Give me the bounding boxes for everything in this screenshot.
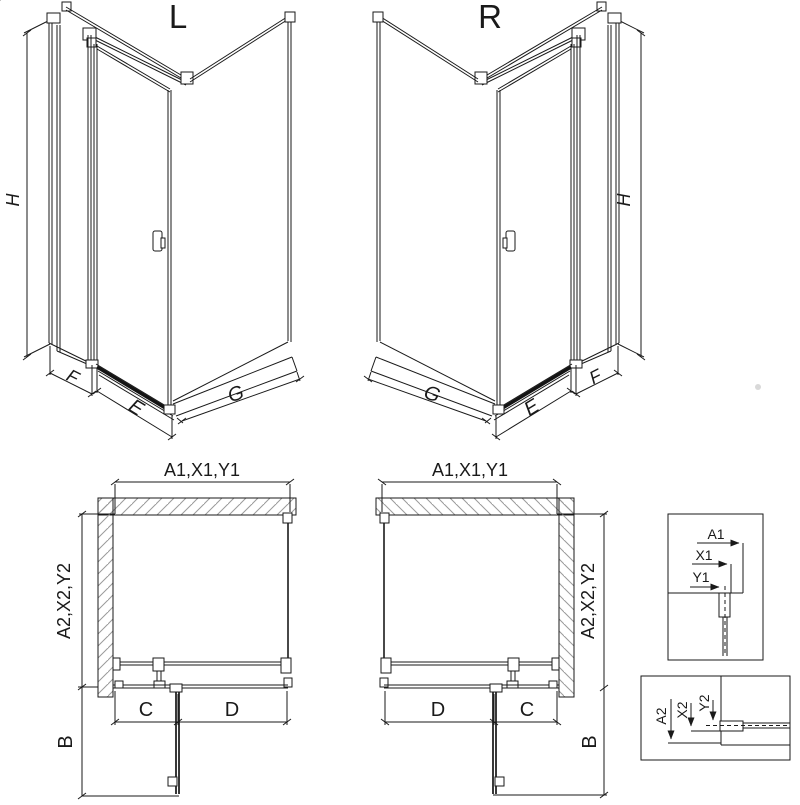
door-handle-plan bbox=[168, 777, 177, 786]
plan-left-depth-label: A2,X2,Y2 bbox=[54, 563, 74, 639]
variant-label-right: R bbox=[478, 0, 502, 35]
plan-left-c-label: C bbox=[139, 699, 153, 721]
watermark-dot bbox=[755, 384, 761, 390]
plan-left-view bbox=[98, 479, 296, 794]
detail-y2-label: Y2 bbox=[696, 694, 712, 711]
plan-left-d-label: D bbox=[225, 699, 239, 721]
sill-wall-profile bbox=[115, 681, 123, 688]
dim-label-f-left: F bbox=[63, 365, 83, 388]
wall-side bbox=[98, 498, 113, 697]
detail-a1-label: A1 bbox=[707, 526, 724, 542]
variant-label-left: L bbox=[169, 0, 187, 35]
door-handle-nub bbox=[161, 238, 165, 248]
plan-left-b-label: B bbox=[55, 735, 77, 748]
glass-foot bbox=[284, 678, 292, 687]
plan-left-dim-strip bbox=[78, 511, 179, 799]
door-pivot bbox=[170, 684, 182, 692]
bar-wall-mount bbox=[113, 658, 120, 670]
bar-connector bbox=[281, 658, 291, 673]
plan-right-d-label: D bbox=[431, 699, 445, 721]
dim-label-h-right: H bbox=[614, 193, 634, 207]
drawing-sheet: L R H F E G H F E G A1,X1,Y1 A2,X2,Y2 C … bbox=[0, 0, 800, 800]
plan-right-dim-strip bbox=[493, 511, 608, 798]
wall-top bbox=[98, 498, 296, 515]
dim-label-f-right: F bbox=[586, 365, 606, 388]
corner-foot-cap bbox=[164, 405, 175, 414]
detail-x1-label: X1 bbox=[695, 547, 712, 563]
plan-right-depth-label: A2,X2,Y2 bbox=[578, 563, 598, 639]
perspective-right-view bbox=[364, 2, 645, 440]
detail-a2-label: A2 bbox=[653, 707, 669, 724]
bar-tee-connector bbox=[153, 658, 164, 671]
dim-label-g-left: G bbox=[225, 381, 247, 407]
wall-profile-cap bbox=[285, 12, 295, 22]
plan-right-b-label: B bbox=[579, 735, 601, 748]
plan-right-width-label: A1,X1,Y1 bbox=[432, 460, 508, 480]
perspective-left-view bbox=[23, 2, 304, 440]
dim-label-h-left: H bbox=[3, 193, 23, 207]
wall-profile-cap bbox=[47, 13, 60, 23]
detail-y1-label: Y1 bbox=[692, 569, 709, 585]
wall-profile bbox=[283, 513, 292, 523]
dim-label-g-right: G bbox=[421, 381, 443, 407]
shower-enclosure-technical-drawing: L R H F E G H F E G A1,X1,Y1 A2,X2,Y2 C … bbox=[0, 0, 800, 800]
detail-x2-label: X2 bbox=[674, 701, 690, 718]
plan-right-view bbox=[376, 479, 574, 794]
plan-right-c-label: C bbox=[520, 699, 534, 721]
plan-left-width-label: A1,X1,Y1 bbox=[164, 460, 240, 480]
